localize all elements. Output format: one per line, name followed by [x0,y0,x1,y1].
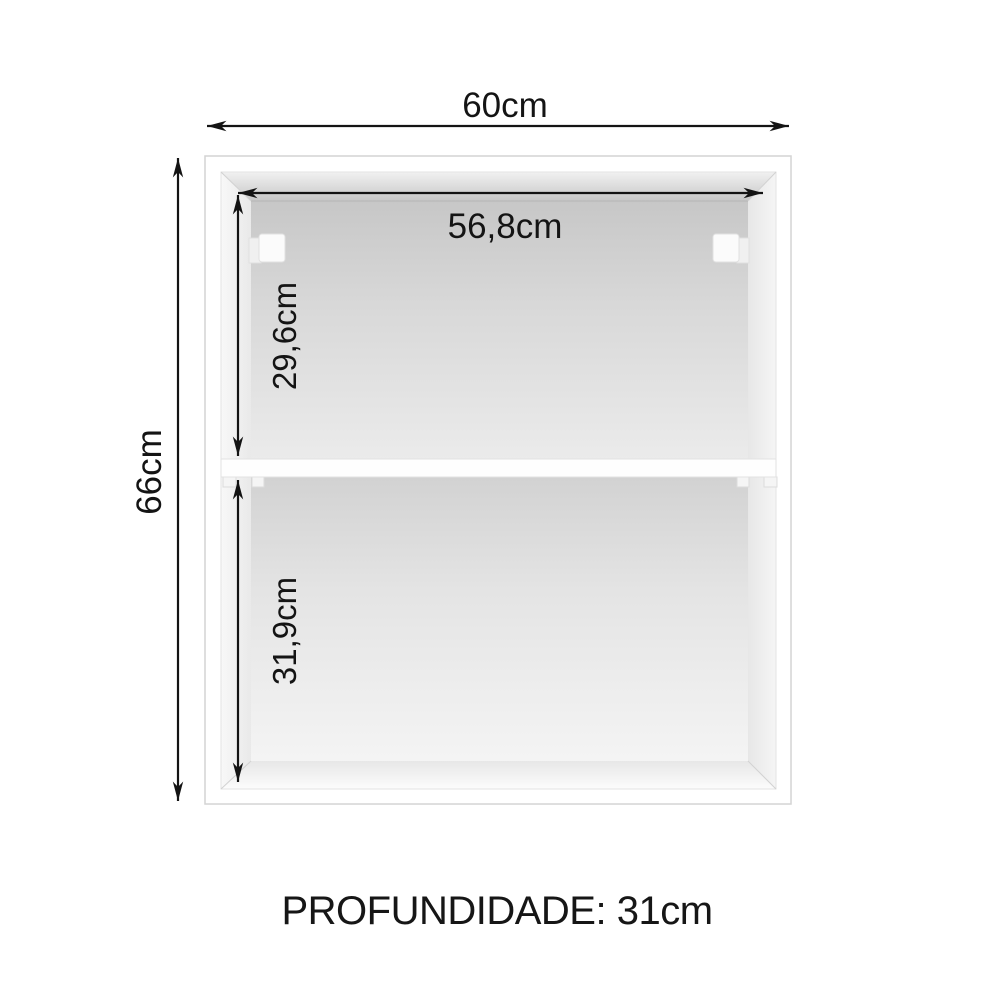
lower-compartment-label: 31,9cm [266,577,303,685]
dimension-outer-width: 60cm [207,86,789,126]
shelf-peg [252,477,264,487]
dimension-diagram-canvas: 60cm 66cm 56,8cm 29,6cm 31,9cm PROFUNDID… [0,0,1000,1000]
shelf-peg [223,477,236,487]
depth-label: PROFUNDIDADE: 31cm [281,889,712,933]
left-hinge-cube [259,234,285,262]
cabinet-top-underside [221,172,776,201]
outer-width-label: 60cm [462,86,548,125]
cabinet [205,156,791,804]
outer-height-label: 66cm [130,429,169,515]
shelf-board [221,459,776,477]
dimension-outer-height: 66cm [130,158,178,801]
cabinet-dimension-diagram: 60cm 66cm 56,8cm 29,6cm 31,9cm PROFUNDID… [0,0,1000,1000]
inner-width-label: 56,8cm [448,207,563,246]
left-hinge-block [249,234,285,263]
lower-compartment-back-panel [251,477,748,761]
upper-compartment-label: 29,6cm [266,282,303,390]
right-hinge-cube [713,234,739,262]
shelf-peg [764,477,777,487]
shelf-peg [737,477,749,487]
right-hinge-block [713,234,749,263]
cabinet-bottom-floor [221,761,776,789]
